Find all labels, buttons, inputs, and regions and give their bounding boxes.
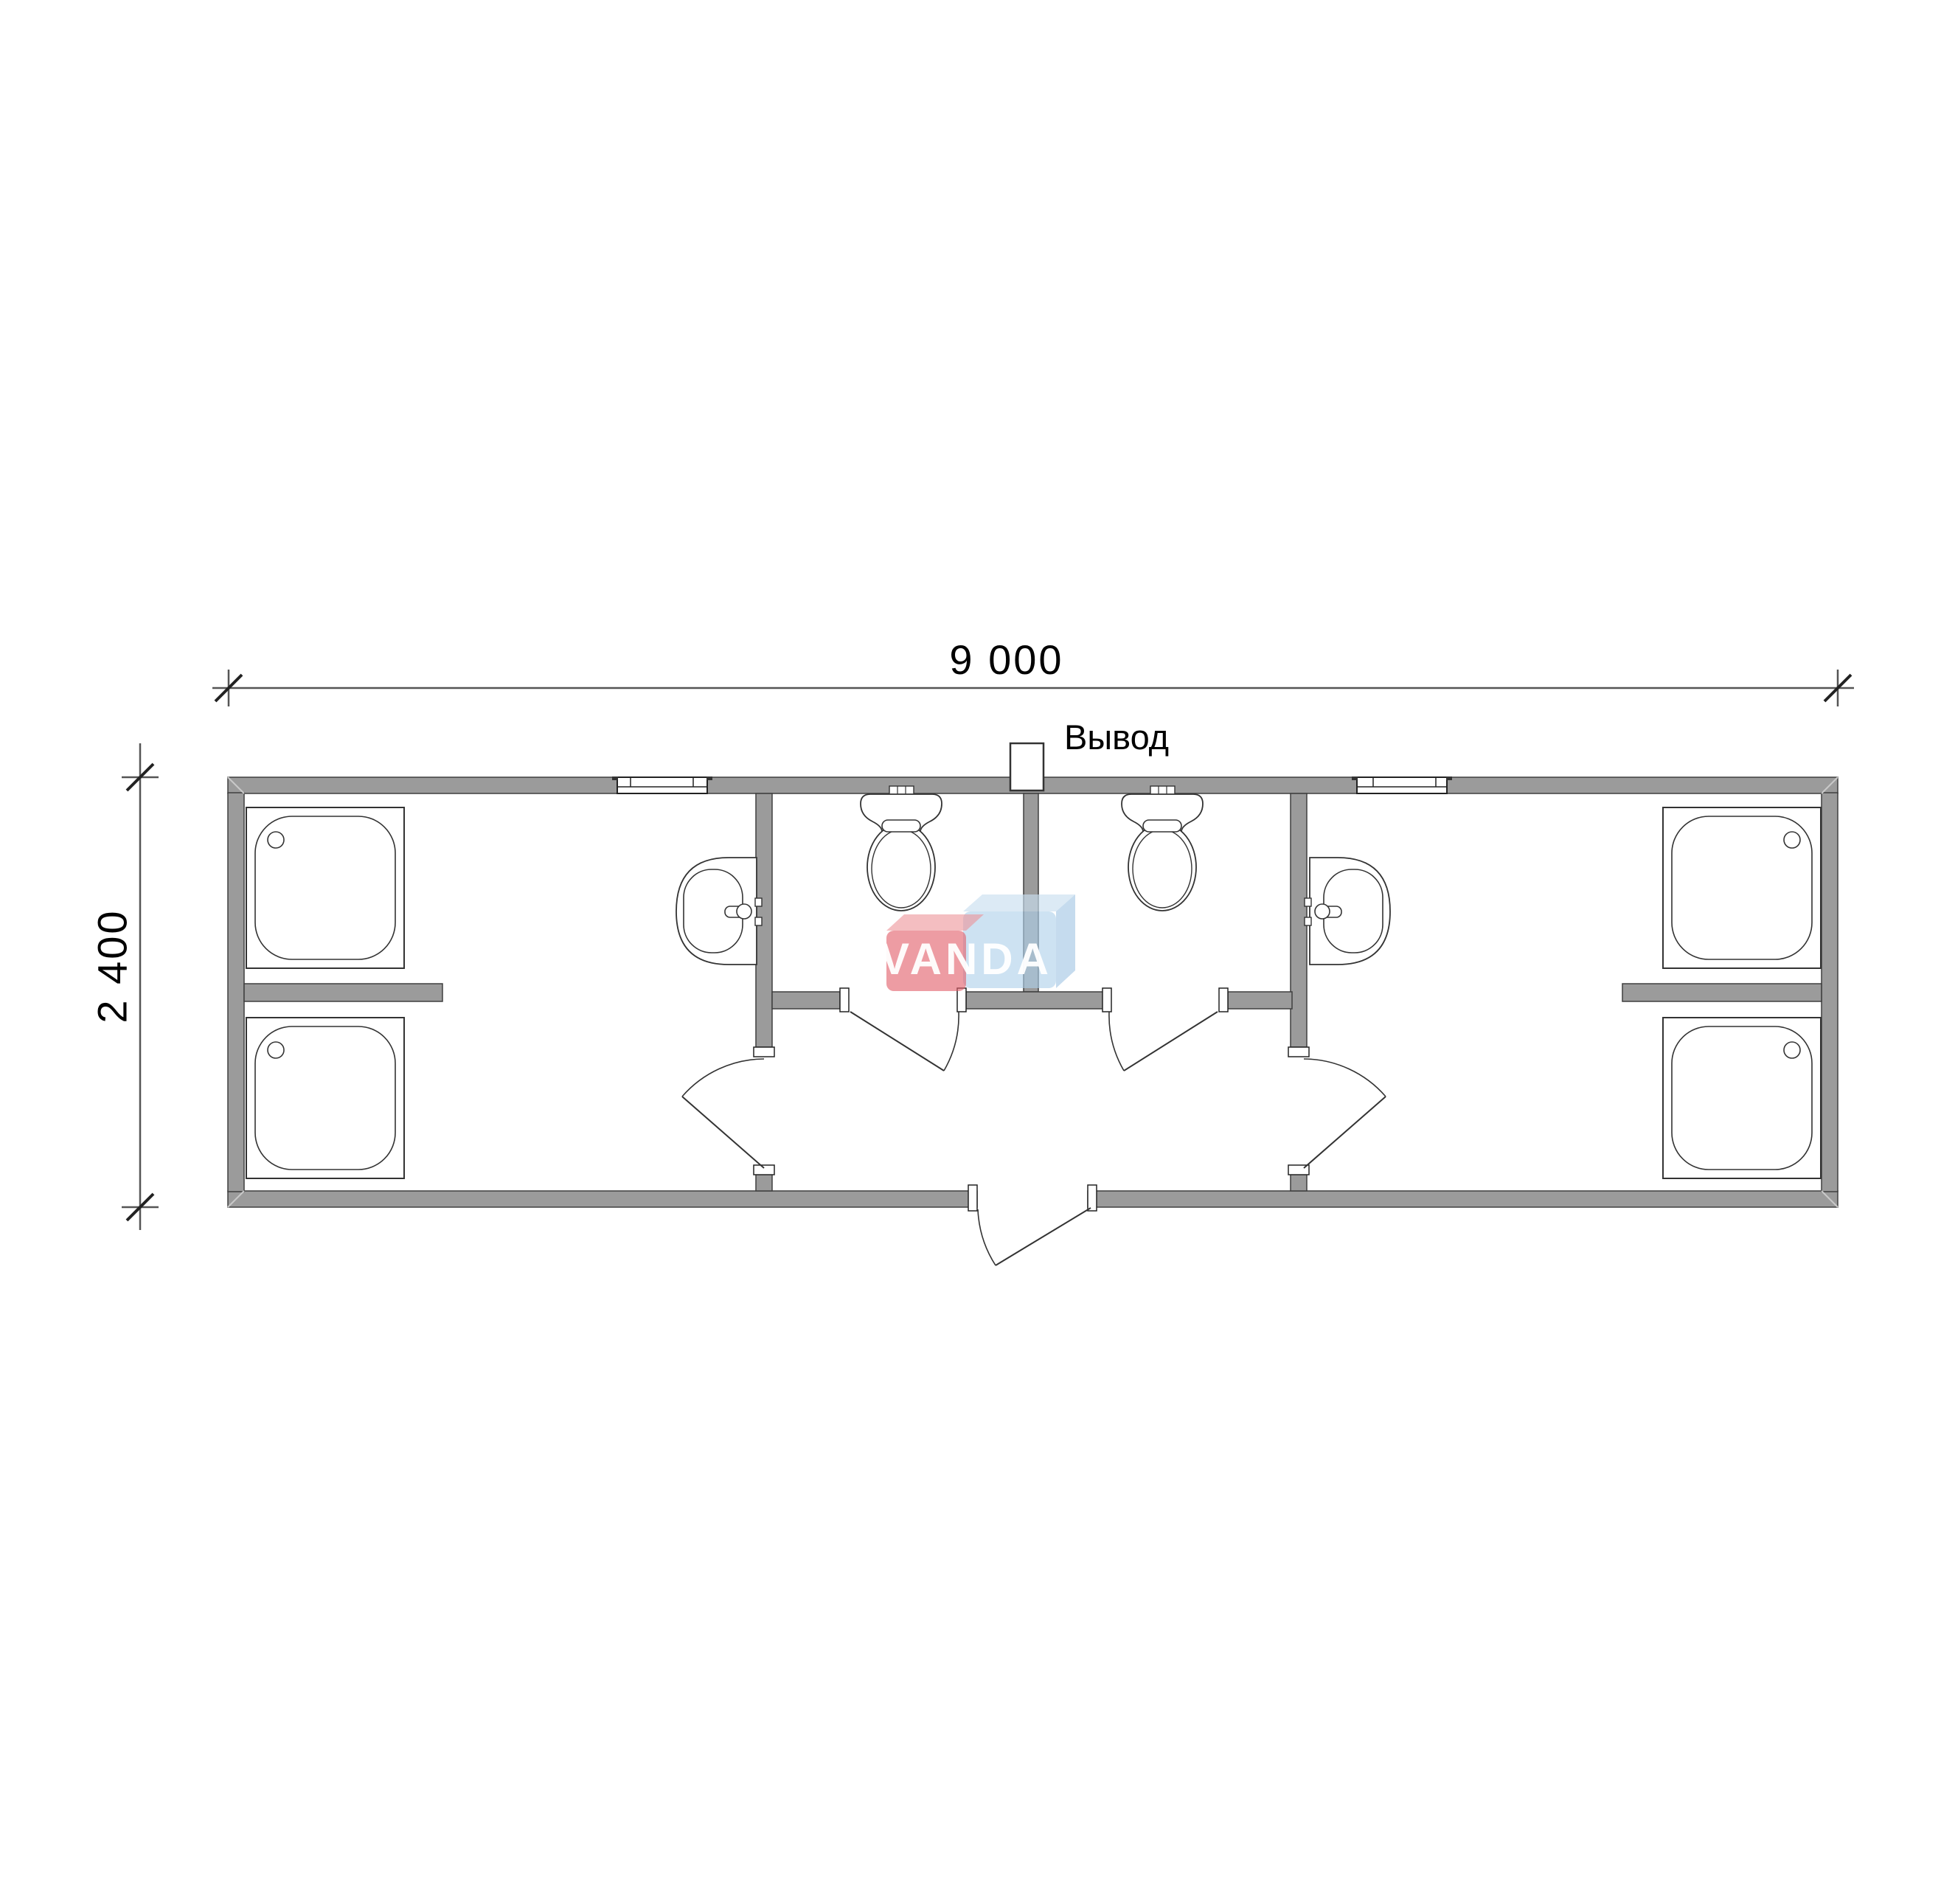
door-right-room-leaf xyxy=(1304,1097,1386,1168)
jamb-entrance-right xyxy=(1088,1185,1097,1211)
washbasin-icon-right xyxy=(1305,858,1390,965)
door-left-room xyxy=(682,1059,764,1168)
wc-front-wall-center xyxy=(966,992,1104,1009)
door-wc-left-leaf xyxy=(850,1012,944,1071)
door-jambs xyxy=(754,988,1309,1211)
jamb-wc-left-hinge xyxy=(840,988,849,1012)
vanda-logo-blue-top-face xyxy=(963,894,1075,911)
toilet-icon-right xyxy=(1122,786,1203,911)
partition-right-room-stub xyxy=(1291,1174,1307,1191)
jamb-wc-right-hinge xyxy=(1219,988,1228,1012)
jamb-entrance-left xyxy=(968,1185,977,1211)
door-right-room-arc xyxy=(1304,1059,1386,1097)
door-wc-left-arc xyxy=(944,1012,959,1071)
interior-walls xyxy=(244,793,1822,1191)
doors xyxy=(682,1012,1386,1265)
door-wc-right-leaf xyxy=(1124,1012,1218,1071)
jamb-wc-right-strike xyxy=(1103,988,1111,1012)
door-entrance-leaf xyxy=(996,1208,1091,1265)
dimension-height-label: 2 400 xyxy=(88,908,136,1023)
shower-tray-icon-bottom-right xyxy=(1663,1018,1821,1178)
wall-bottom-right xyxy=(1088,1191,1838,1207)
shower-divider-left xyxy=(244,984,442,1001)
vanda-logo-text: VANDA xyxy=(880,934,1052,984)
wall-bottom-left xyxy=(228,1191,977,1207)
window-left xyxy=(612,776,712,793)
door-wc-right xyxy=(1109,1012,1218,1071)
jamb-wc-left-strike xyxy=(957,988,966,1012)
shower-tray-icon-bottom-left xyxy=(246,1018,404,1178)
outlet-label: Вывод xyxy=(1064,717,1169,757)
wall-right xyxy=(1822,793,1838,1192)
toilet-icon-left xyxy=(861,786,942,911)
wall-left xyxy=(228,793,244,1192)
shower-divider-right xyxy=(1622,984,1822,1001)
jamb-left-room-top xyxy=(754,1047,774,1057)
shower-tray-icon-top-left xyxy=(246,807,404,968)
floor-plan-drawing: VANDA xyxy=(0,0,1941,1904)
floor-plan-canvas: VANDA 9 000 2 400 Вывод xyxy=(0,0,1941,1904)
utility-outlet-stub xyxy=(1010,743,1044,791)
door-entrance-arc xyxy=(978,1209,996,1265)
dimension-width-label: 9 000 xyxy=(949,636,1063,684)
shower-tray-icon-top-right xyxy=(1663,807,1821,968)
wc-front-wall-right xyxy=(1228,992,1292,1009)
partition-left-room-stub xyxy=(756,1174,772,1191)
window-right xyxy=(1352,776,1452,793)
wc-front-wall-left xyxy=(772,992,840,1009)
jamb-left-room-bottom xyxy=(754,1165,774,1175)
door-wc-right-arc xyxy=(1109,1012,1124,1071)
door-left-room-arc xyxy=(682,1059,764,1097)
washbasin-icon-left xyxy=(676,858,762,965)
door-right-room xyxy=(1304,1059,1386,1168)
door-entrance xyxy=(978,1208,1091,1265)
door-wc-left xyxy=(850,1012,959,1071)
jamb-right-room-top xyxy=(1288,1047,1309,1057)
door-left-room-leaf xyxy=(682,1097,764,1168)
